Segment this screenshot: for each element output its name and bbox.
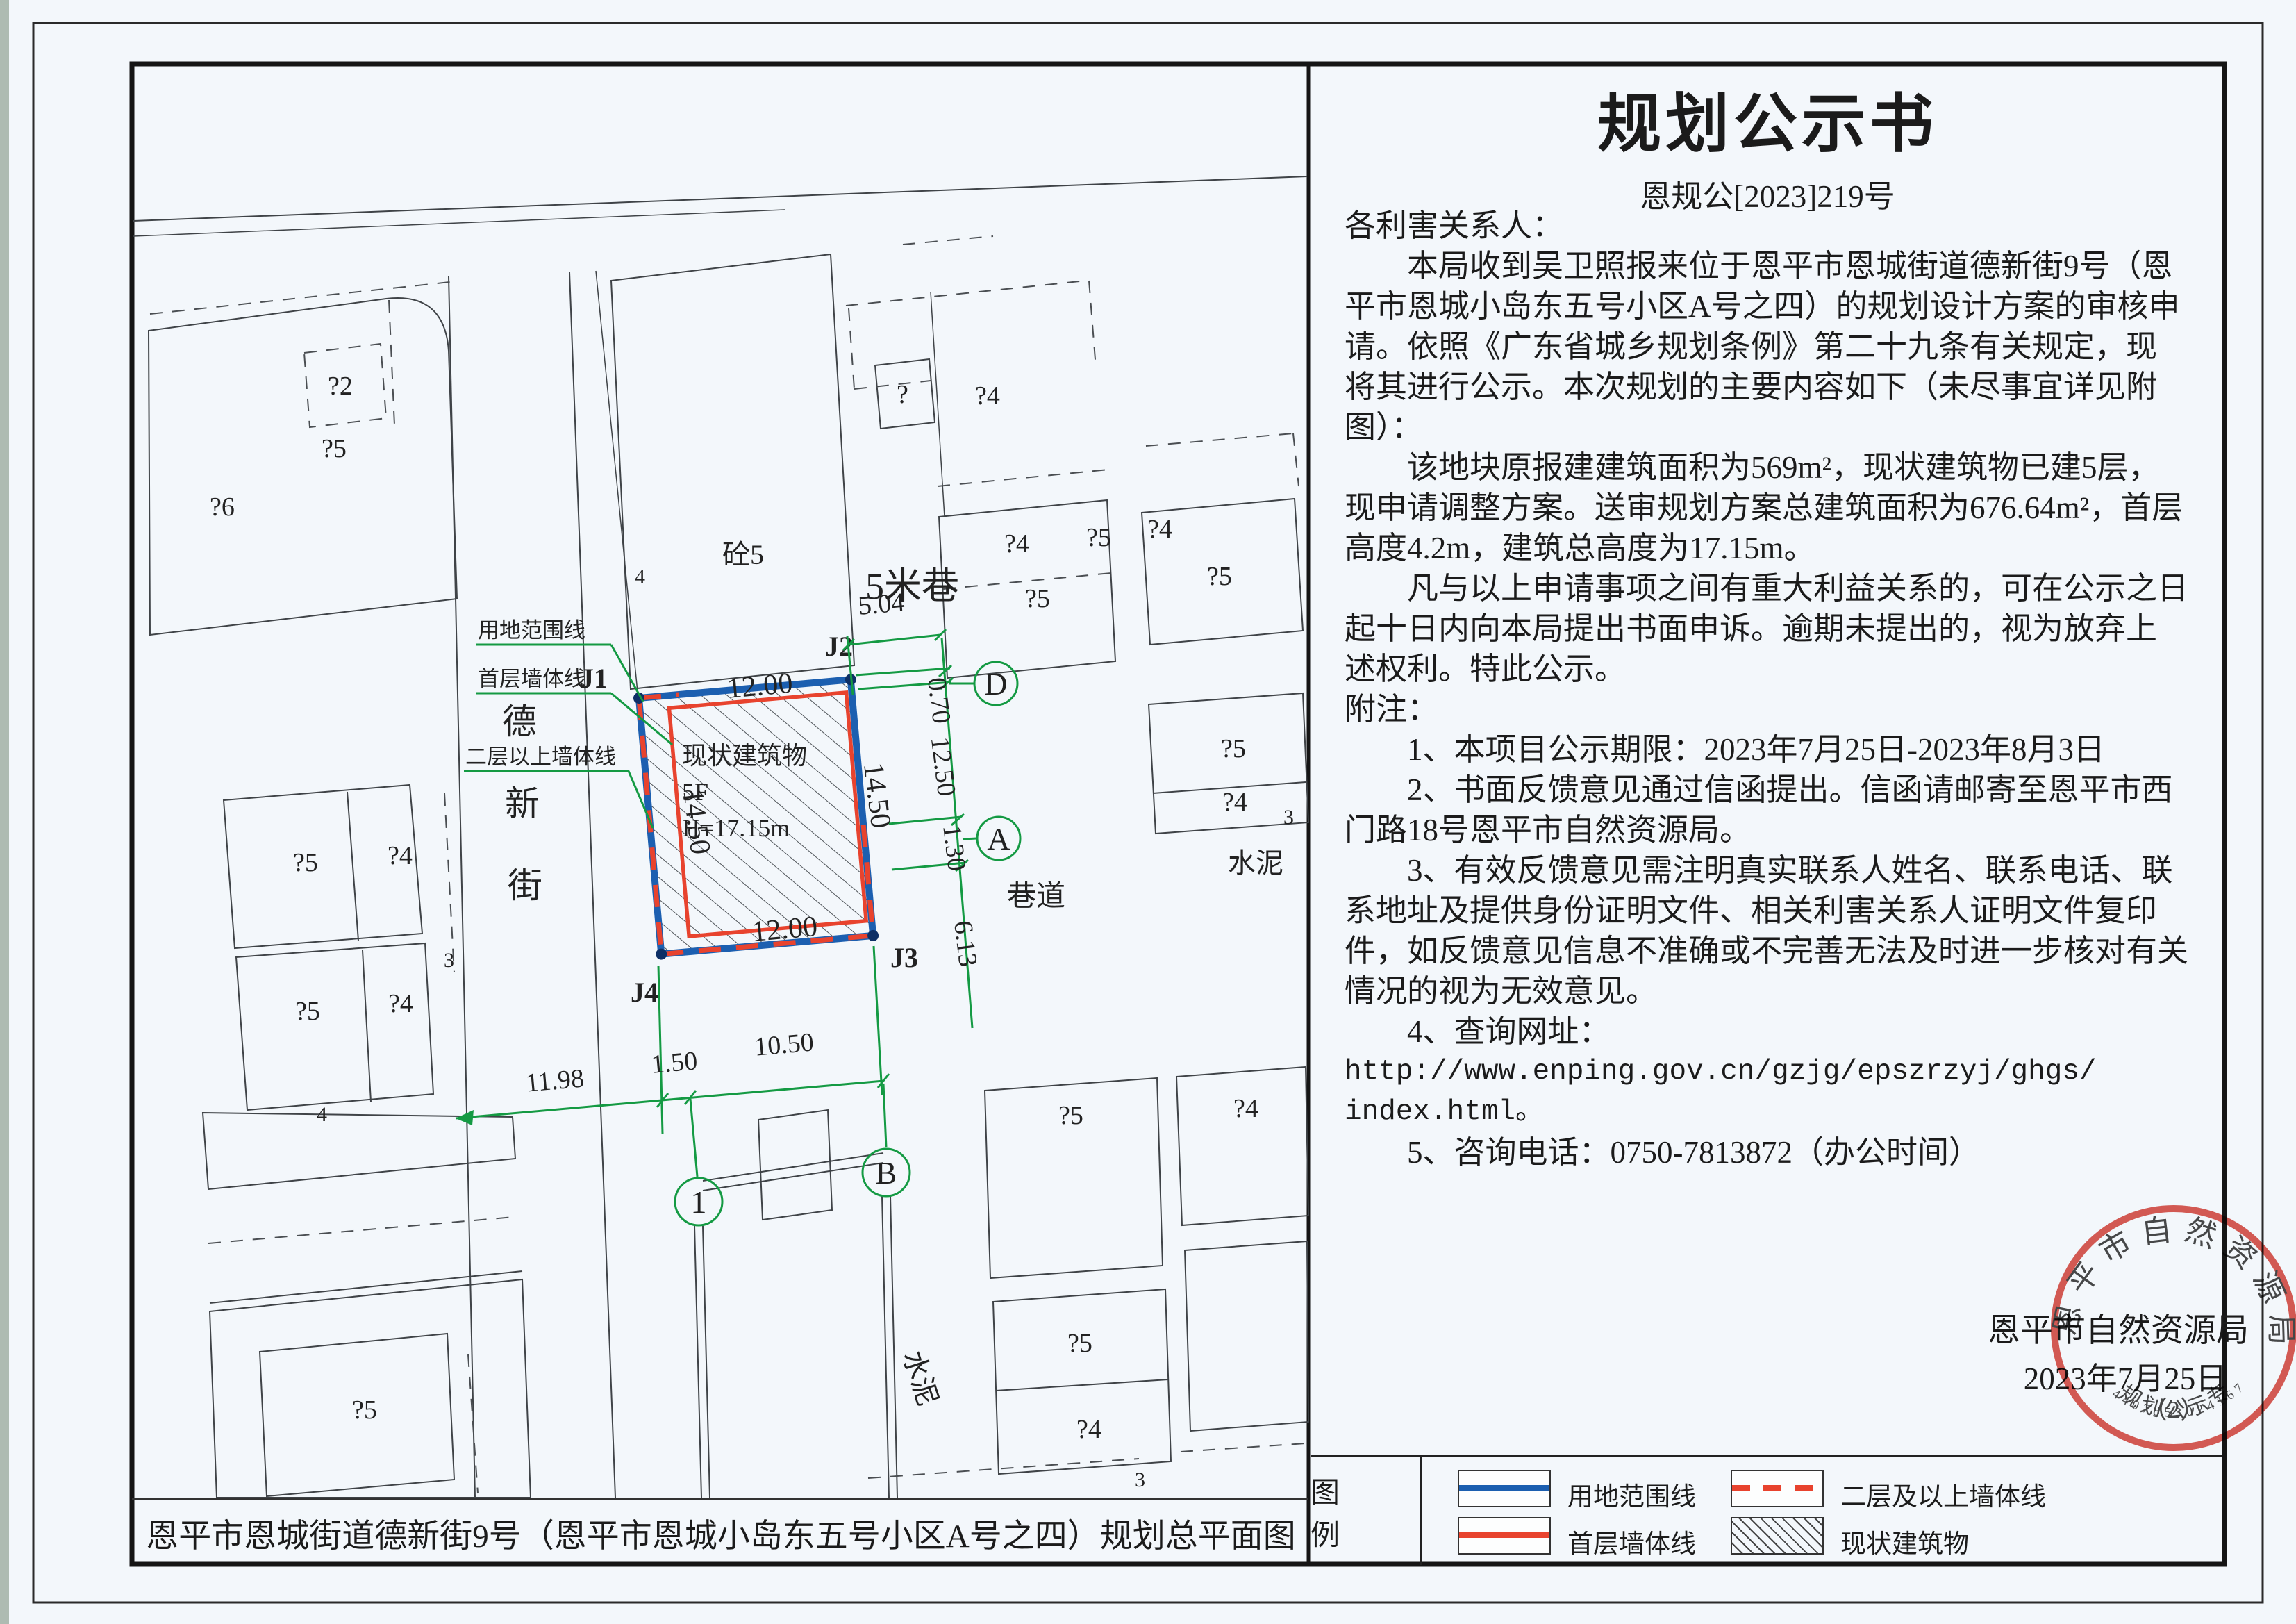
official-stamp: 恩平市自然资源局 规划公示专用章 （2） 4407853024167 <box>0 0 2296 1624</box>
stamp-ring-text: 恩平市自然资源局 <box>2048 1211 2296 1354</box>
stamp-inner-text: 规划公示专用章 <box>0 0 2238 1423</box>
scanned-planning-notice: 12.00 12.00 14.50 14.50 现状建筑物 5F H=17.15… <box>0 0 2296 1624</box>
